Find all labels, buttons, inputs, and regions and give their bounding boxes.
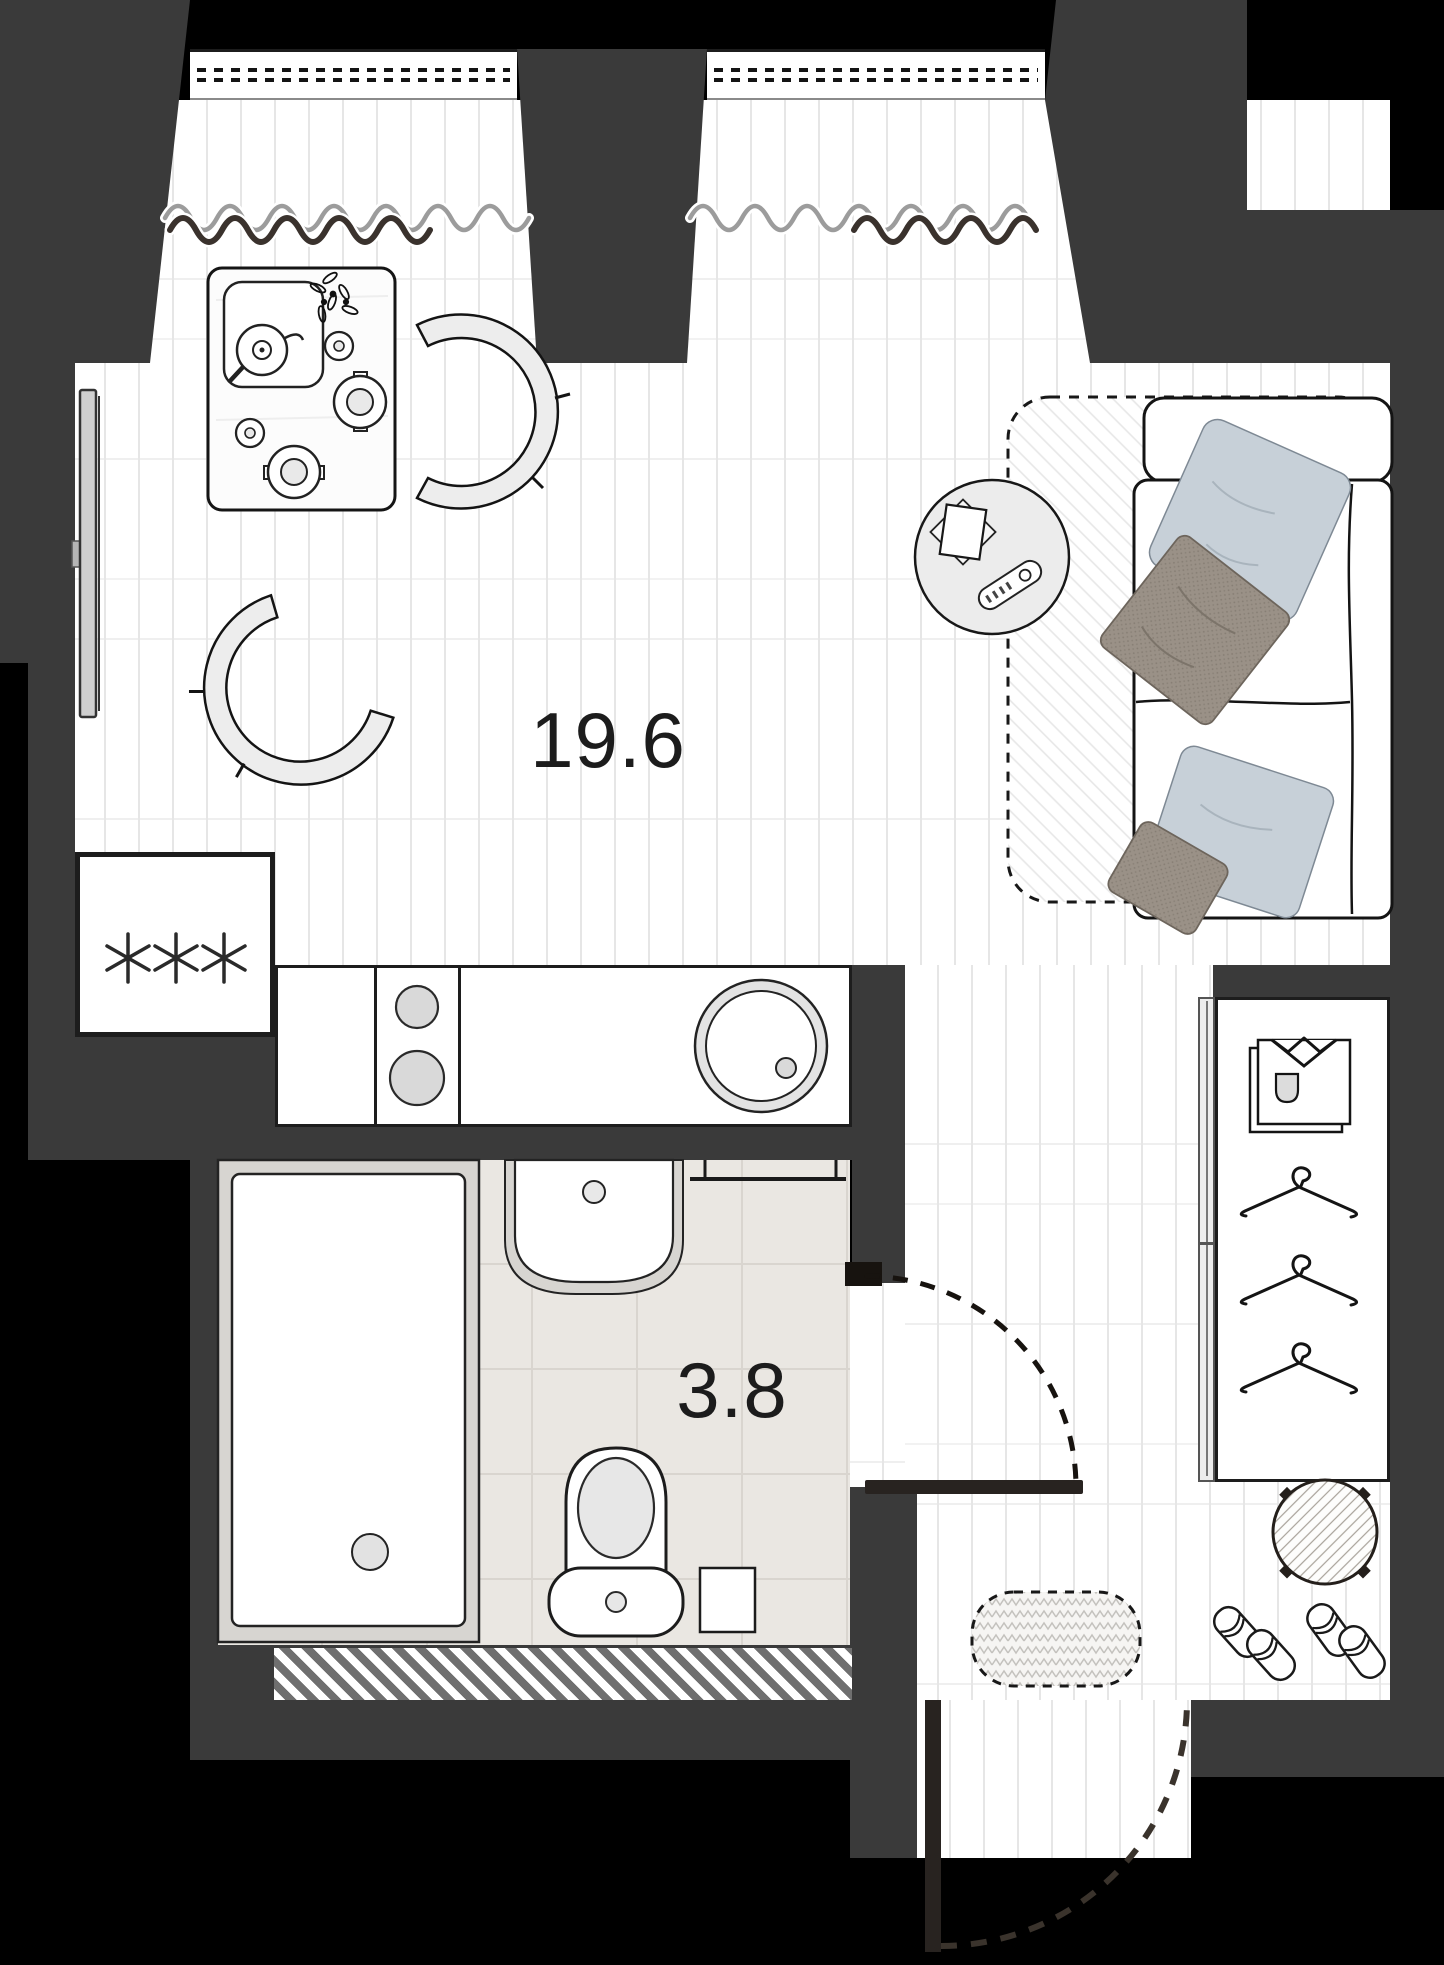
cup-icon bbox=[325, 332, 353, 360]
drain-icon bbox=[352, 1534, 388, 1570]
door-swing-arc bbox=[941, 1704, 1187, 1946]
wall-tv-icon bbox=[72, 390, 99, 717]
door-swing-arc bbox=[865, 1276, 1076, 1487]
chair-icon bbox=[417, 315, 570, 509]
shirt-icon bbox=[1250, 1038, 1350, 1132]
bathroom-sink-icon bbox=[505, 1160, 683, 1294]
door-leaf bbox=[865, 1480, 1083, 1494]
flush-button-icon bbox=[606, 1592, 626, 1612]
entry-door bbox=[925, 1700, 1187, 1952]
toilet-icon bbox=[549, 1448, 683, 1636]
faucet-icon bbox=[776, 1058, 796, 1078]
kitchen-sink-icon bbox=[695, 980, 827, 1112]
bathroom-area-label: 3.8 bbox=[676, 1345, 787, 1436]
curtain-window-1 bbox=[165, 206, 529, 242]
main-room-area-label: 19.6 bbox=[530, 695, 686, 786]
bathroom-door bbox=[845, 1262, 1083, 1494]
chair-icon bbox=[155, 588, 400, 833]
hanger-icon bbox=[1241, 1256, 1356, 1305]
fridge-icon bbox=[107, 934, 245, 982]
furniture-layer bbox=[0, 0, 1444, 1965]
hanger-icon bbox=[1241, 1168, 1356, 1217]
bathtub-icon bbox=[218, 1160, 479, 1642]
curtain-window-2 bbox=[690, 206, 1036, 242]
book-icon bbox=[940, 504, 987, 559]
dining-table bbox=[155, 268, 570, 833]
pouf-icon bbox=[1273, 1480, 1377, 1584]
faucet-icon bbox=[583, 1181, 605, 1203]
bathroom-bin bbox=[700, 1568, 755, 1632]
coffee-table bbox=[915, 480, 1069, 634]
entry-rug bbox=[972, 1592, 1140, 1686]
towel-rail-icon bbox=[690, 1160, 846, 1179]
hob-icon bbox=[390, 986, 444, 1105]
cup-icon bbox=[236, 419, 264, 447]
hanger-icon bbox=[1241, 1344, 1356, 1393]
door-leaf bbox=[925, 1700, 941, 1952]
floorplan: 19.6 3.8 bbox=[0, 0, 1444, 1965]
slippers-icon bbox=[1209, 1599, 1390, 1685]
